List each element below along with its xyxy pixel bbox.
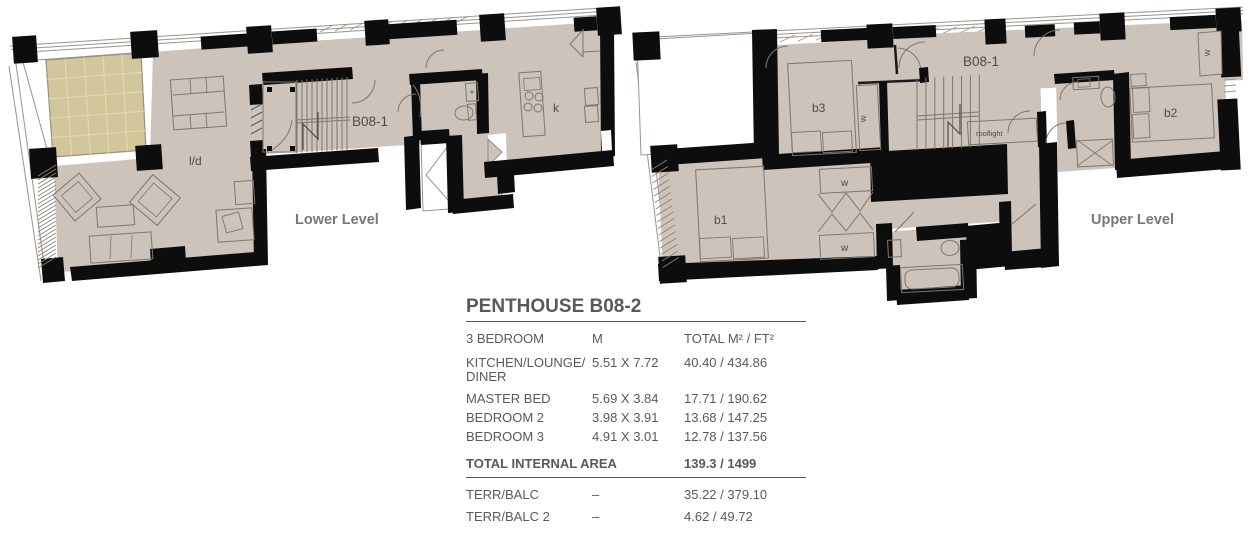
svg-text:B08-1: B08-1 — [963, 54, 999, 69]
svg-text:w: w — [840, 243, 849, 254]
svg-text:w: w — [840, 178, 849, 189]
svg-text:B08-1: B08-1 — [352, 114, 388, 129]
svg-text:b3: b3 — [812, 101, 826, 115]
svg-text:w: w — [858, 115, 868, 123]
svg-text:l/d: l/d — [189, 154, 202, 168]
svg-text:w: w — [1202, 49, 1212, 57]
svg-text:b1: b1 — [714, 213, 728, 227]
svg-text:rooflight: rooflight — [976, 129, 1004, 138]
svg-text:b2: b2 — [1164, 106, 1178, 120]
svg-text:Upper Level: Upper Level — [1091, 212, 1174, 228]
svg-text:k: k — [553, 101, 560, 115]
svg-text:Lower Level: Lower Level — [295, 212, 379, 228]
